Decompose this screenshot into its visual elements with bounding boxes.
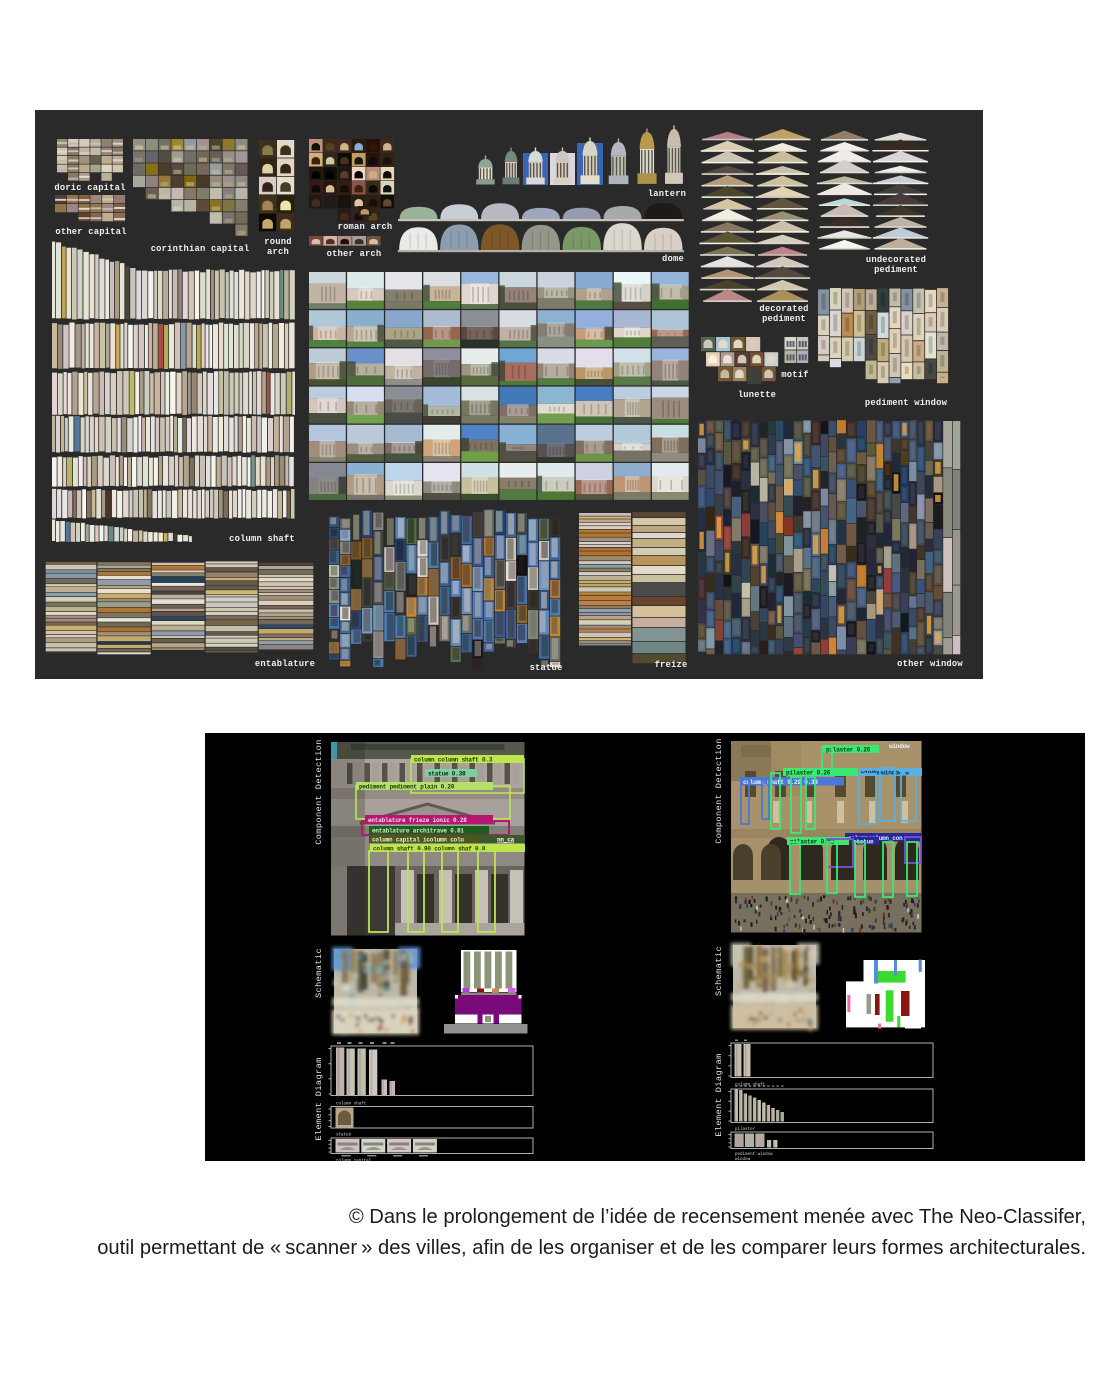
svg-text:column capital icolumn colu: column capital icolumn colu (372, 837, 464, 844)
svg-text:pediment window: pediment window (865, 398, 948, 408)
svg-text:pilaster 0.26: pilaster 0.26 (786, 770, 831, 777)
svg-text:column shaft: column shaft (735, 1083, 766, 1088)
svg-text:window: window (735, 1157, 751, 1161)
svg-text:lantern: lantern (648, 189, 686, 199)
svg-text:other window: other window (897, 659, 963, 669)
svg-text:Schematic: Schematic (714, 946, 724, 996)
svg-text:Element Diagram: Element Diagram (714, 1053, 724, 1136)
svg-text:roman arch: roman arch (338, 222, 393, 232)
svg-text:pediment: pediment (874, 265, 918, 275)
svg-text:entablature architrave 0.81: entablature architrave 0.81 (372, 828, 464, 835)
svg-text:other capital: other capital (55, 227, 126, 237)
svg-text:corinthian capital: corinthian capital (151, 244, 250, 254)
svg-text:pediment: pediment (762, 314, 806, 324)
svg-text:column column shaft 0.3: column column shaft 0.3 (414, 757, 493, 764)
svg-text:statue: statue (530, 663, 563, 673)
svg-text:column shaft: column shaft (336, 1102, 367, 1107)
svg-text:window: window (889, 743, 910, 750)
svg-text:Element Diagram: Element Diagram (314, 1057, 324, 1140)
svg-text:pediment window: pediment window (735, 1152, 773, 1157)
svg-text:Component Detection: Component Detection (314, 739, 324, 845)
svg-text:Schematic: Schematic (314, 948, 324, 998)
svg-text:column shaft: column shaft (229, 534, 295, 544)
svg-text:decorated: decorated (759, 304, 808, 314)
svg-text:motif: motif (781, 370, 808, 380)
svg-text:dome: dome (662, 254, 684, 264)
svg-text:undecorated: undecorated (866, 255, 926, 265)
svg-text:Component Detection: Component Detection (714, 738, 724, 844)
svg-text:lunette: lunette (738, 390, 776, 400)
svg-text:statue 0.38: statue 0.38 (428, 771, 466, 778)
svg-text:column capital: column capital (336, 1159, 372, 1162)
svg-text:column shaft 0.90 column shaf: column shaft 0.90 column shaf 0.8 (373, 846, 486, 853)
svg-text:other arch: other arch (327, 249, 382, 259)
svg-text:entablature frieze ionic 0.28: entablature frieze ionic 0.28 (368, 817, 467, 824)
svg-text:round: round (264, 237, 291, 247)
svg-text:pediment pediment plain 0.20: pediment pediment plain 0.20 (359, 784, 455, 791)
svg-text:pilaster: pilaster (735, 1127, 756, 1132)
svg-text:nn_ca: nn_ca (497, 837, 515, 844)
svg-text:freize: freize (655, 660, 688, 670)
svg-text:doric capital: doric capital (54, 183, 125, 193)
svg-text:entablature: entablature (255, 659, 315, 669)
svg-text:statue: statue (336, 1134, 352, 1138)
svg-text:arch: arch (267, 247, 289, 257)
